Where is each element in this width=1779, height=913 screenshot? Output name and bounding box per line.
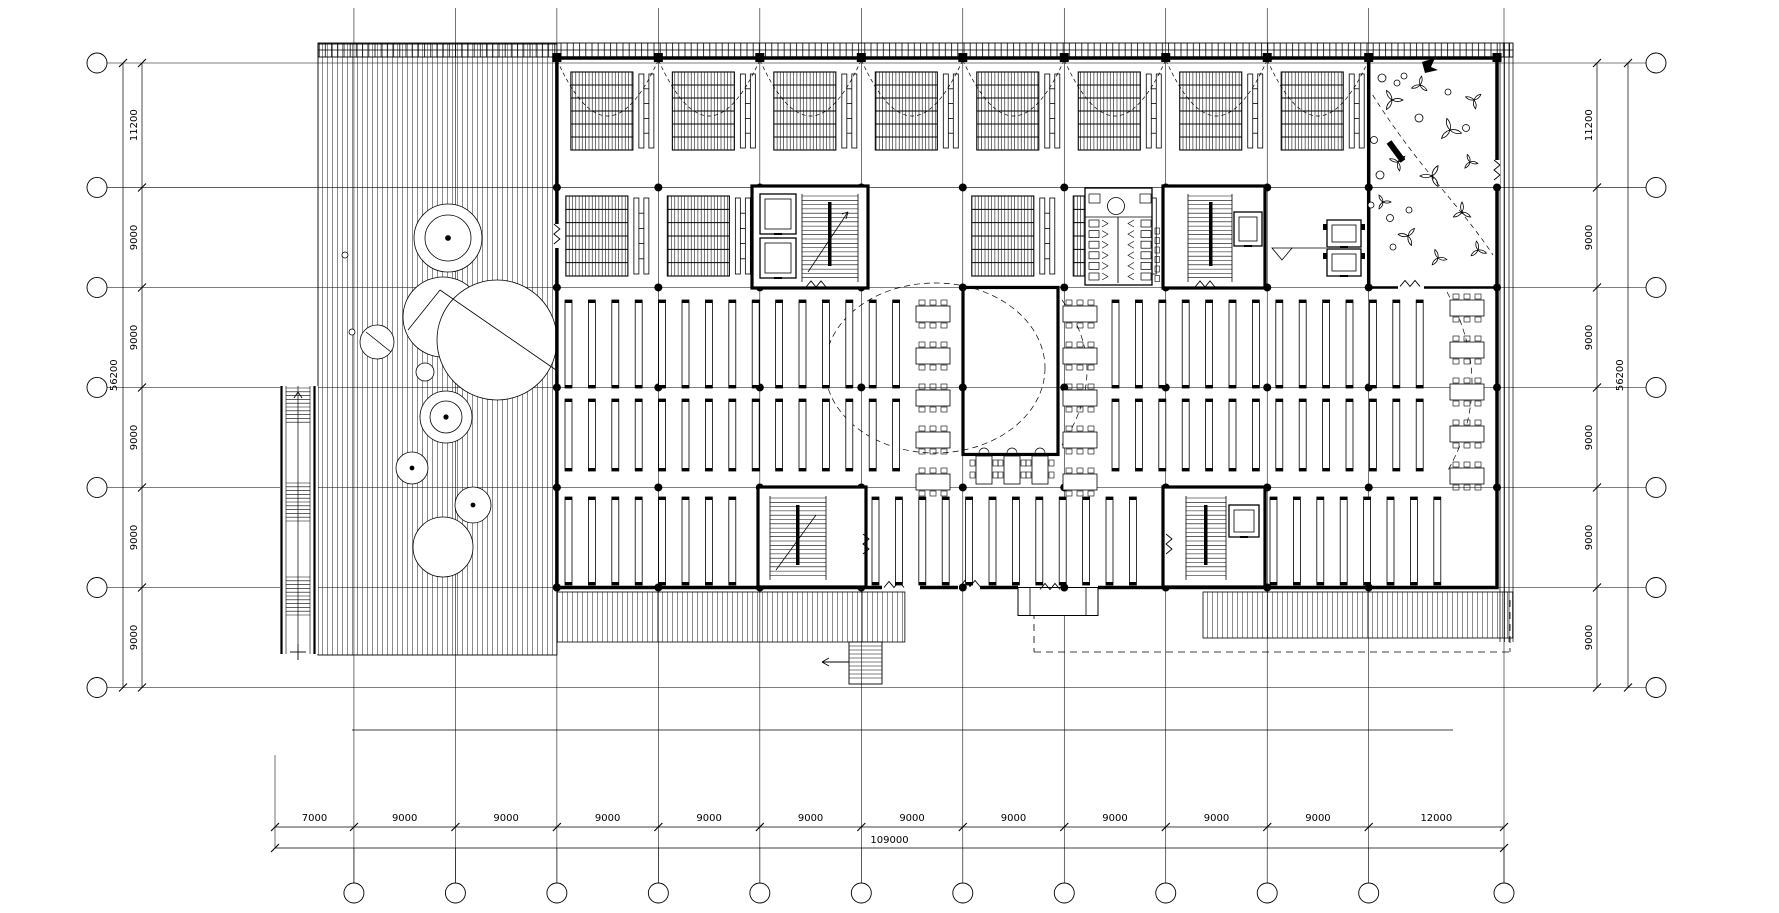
svg-text:9000: 9000 — [798, 813, 823, 824]
svg-text:9000: 9000 — [696, 813, 721, 824]
svg-text:56200: 56200 — [109, 359, 120, 391]
svg-text:56200: 56200 — [1615, 359, 1626, 391]
shelving-field — [565, 300, 1441, 585]
svg-text:9000: 9000 — [129, 525, 140, 550]
svg-text:9000: 9000 — [595, 813, 620, 824]
svg-text:9000: 9000 — [1001, 813, 1026, 824]
svg-text:7000: 7000 — [302, 813, 327, 824]
core-stair-elevator-a — [752, 186, 868, 288]
svg-text:9000: 9000 — [1584, 625, 1595, 650]
svg-text:9000: 9000 — [129, 425, 140, 450]
entry-steps — [822, 642, 882, 684]
roof-garden — [1368, 58, 1493, 265]
svg-text:9000: 9000 — [129, 325, 140, 350]
svg-text:9000: 9000 — [1204, 813, 1229, 824]
core-stair-d — [1163, 487, 1265, 587]
exterior-stair — [280, 386, 318, 660]
cad-viewport: Library building floor plan — CAD drawin… — [0, 0, 1779, 913]
floor-plan-canvas: 1120090009000900090009000562001120090009… — [0, 0, 1779, 913]
right-walkway-strip — [1500, 43, 1513, 642]
pergola-band — [318, 43, 1513, 57]
svg-text:9000: 9000 — [392, 813, 417, 824]
core-stair-elevator-b — [1163, 186, 1265, 288]
svg-text:9000: 9000 — [1584, 425, 1595, 450]
svg-text:9000: 9000 — [493, 813, 518, 824]
svg-text:9000: 9000 — [129, 225, 140, 250]
svg-text:109000: 109000 — [870, 835, 908, 846]
svg-text:9000: 9000 — [129, 625, 140, 650]
svg-text:11200: 11200 — [129, 109, 140, 141]
svg-text:9000: 9000 — [1584, 325, 1595, 350]
restroom-block — [1085, 188, 1152, 285]
core-stair-c — [758, 487, 869, 587]
svg-text:11200: 11200 — [1584, 109, 1595, 141]
svg-text:9000: 9000 — [1102, 813, 1127, 824]
svg-text:9000: 9000 — [899, 813, 924, 824]
svg-text:9000: 9000 — [1584, 525, 1595, 550]
svg-text:9000: 9000 — [1584, 225, 1595, 250]
svg-text:9000: 9000 — [1305, 813, 1330, 824]
elevator-lobby — [1272, 220, 1365, 276]
svg-text:12000: 12000 — [1420, 813, 1452, 824]
entrance-vestibule — [1018, 583, 1098, 615]
